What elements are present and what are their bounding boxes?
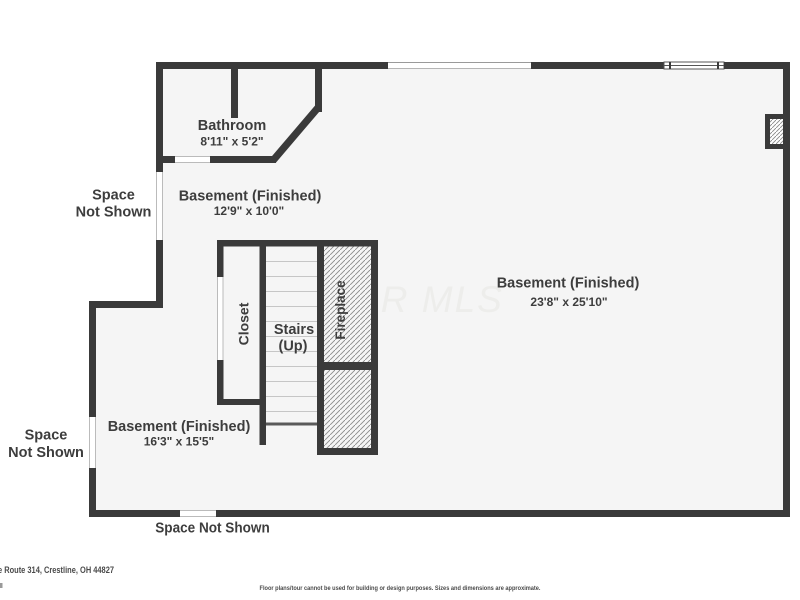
svg-text:Basement (Finished): Basement (Finished) <box>497 276 640 292</box>
svg-text:(Up): (Up) <box>279 339 308 355</box>
svg-text:Floor plans/tour cannot be use: Floor plans/tour cannot be used for buil… <box>260 585 541 592</box>
svg-text:Space: Space <box>92 188 135 204</box>
svg-text:23'8" x 25'10": 23'8" x 25'10" <box>530 295 607 309</box>
svg-text:Stairs: Stairs <box>274 322 314 338</box>
svg-text:Closet: Closet <box>236 302 252 345</box>
svg-text:Basement (Finished): Basement (Finished) <box>179 189 322 205</box>
svg-text:Fireplace: Fireplace <box>333 280 348 340</box>
svg-text:Not Shown: Not Shown <box>8 445 84 461</box>
svg-text:Space: Space <box>25 428 68 444</box>
svg-text:Not Shown: Not Shown <box>76 205 152 221</box>
svg-text:Bathroom: Bathroom <box>198 118 266 134</box>
svg-text:Basement (Finished): Basement (Finished) <box>108 419 251 435</box>
svg-text:e Route 314, Crestline, OH 448: e Route 314, Crestline, OH 44827 <box>0 565 114 575</box>
svg-text:12'9" x 10'0": 12'9" x 10'0" <box>214 204 284 218</box>
svg-text:8'11" x 5'2": 8'11" x 5'2" <box>200 135 263 149</box>
svg-text:Space Not Shown: Space Not Shown <box>155 521 270 537</box>
svg-text:16'3" x 15'5": 16'3" x 15'5" <box>144 435 214 449</box>
